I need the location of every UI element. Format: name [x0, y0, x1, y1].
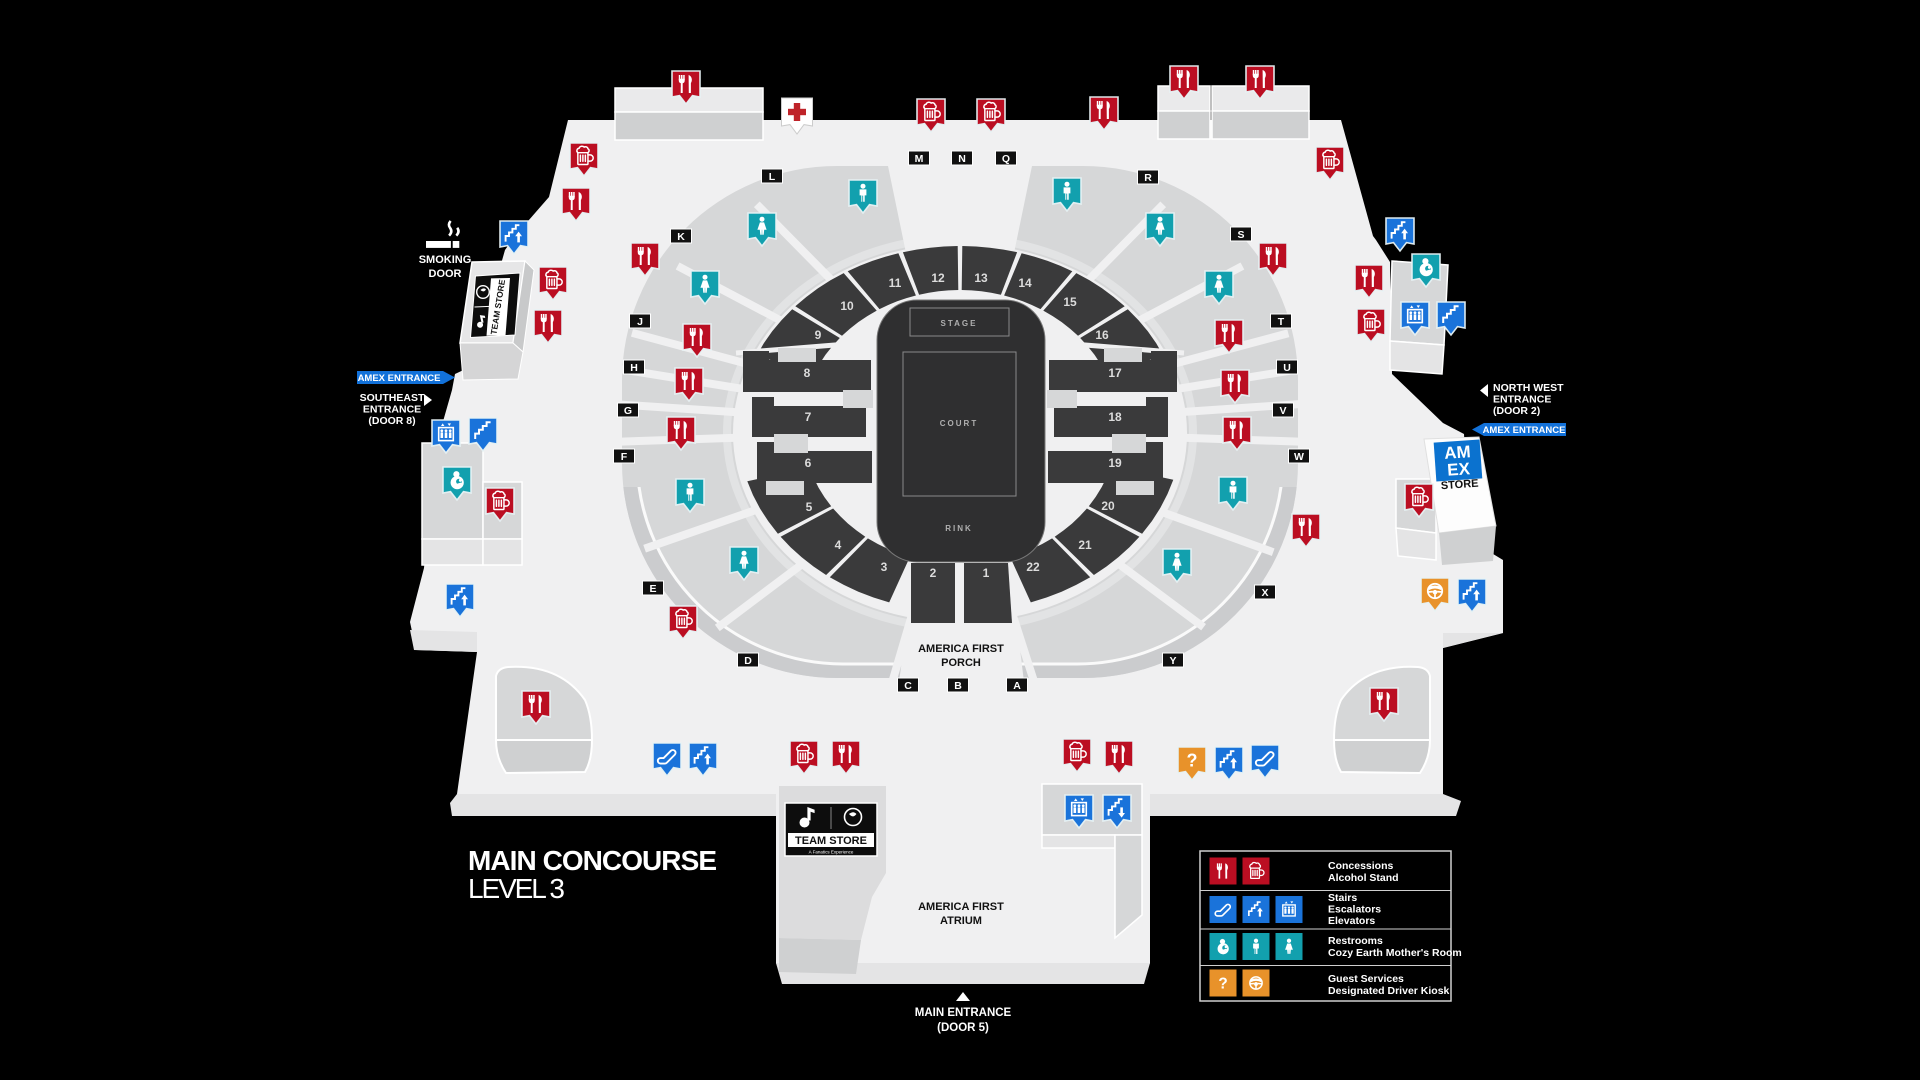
svg-text:ATRIUM: ATRIUM: [940, 915, 982, 927]
svg-text:(DOOR 2): (DOOR 2): [1493, 405, 1540, 417]
svg-text:Alcohol Stand: Alcohol Stand: [1328, 872, 1399, 884]
svg-text:18: 18: [1108, 410, 1122, 424]
svg-text:LEVEL 3: LEVEL 3: [468, 873, 565, 904]
svg-text:20: 20: [1101, 499, 1115, 513]
svg-text:E: E: [649, 583, 656, 595]
svg-text:4: 4: [835, 538, 842, 552]
svg-text:14: 14: [1018, 276, 1032, 290]
svg-text:11: 11: [889, 276, 902, 290]
svg-text:5: 5: [806, 500, 813, 514]
svg-text:3: 3: [881, 560, 888, 574]
svg-text:STAGE: STAGE: [941, 319, 978, 328]
svg-text:1: 1: [983, 566, 990, 580]
svg-text:H: H: [630, 362, 638, 374]
svg-text:F: F: [621, 451, 628, 463]
svg-text:B: B: [954, 680, 962, 692]
svg-text:(DOOR 8): (DOOR 8): [368, 415, 415, 427]
svg-text:A Fanatics Experience: A Fanatics Experience: [809, 850, 854, 855]
svg-text:A: A: [1013, 680, 1021, 692]
svg-text:U: U: [1283, 362, 1291, 374]
svg-text:16: 16: [1095, 328, 1109, 342]
svg-text:13: 13: [974, 271, 988, 285]
svg-text:Q: Q: [1002, 153, 1010, 165]
svg-text:19: 19: [1108, 456, 1122, 470]
svg-text:M: M: [915, 153, 924, 165]
svg-text:Elevators: Elevators: [1328, 915, 1375, 927]
svg-text:21: 21: [1078, 538, 1092, 552]
svg-text:COURT: COURT: [940, 419, 978, 428]
svg-text:S: S: [1237, 229, 1244, 241]
svg-text:Guest Services: Guest Services: [1328, 973, 1404, 985]
svg-text:8: 8: [804, 366, 811, 380]
svg-text:SOUTHEAST: SOUTHEAST: [360, 392, 425, 404]
svg-text:RINK: RINK: [945, 524, 973, 533]
svg-text:15: 15: [1063, 295, 1077, 309]
svg-text:Designated Driver Kiosk: Designated Driver Kiosk: [1328, 985, 1450, 997]
svg-text:ENTRANCE: ENTRANCE: [363, 404, 421, 416]
svg-text:10: 10: [840, 299, 854, 313]
svg-text:W: W: [1294, 451, 1304, 463]
svg-text:C: C: [904, 680, 912, 692]
svg-text:ENTRANCE: ENTRANCE: [1493, 394, 1551, 406]
svg-text:AMERICA FIRST: AMERICA FIRST: [918, 901, 1004, 913]
svg-text:12: 12: [931, 271, 945, 285]
svg-text:Escalators: Escalators: [1328, 904, 1381, 916]
svg-text:2: 2: [930, 566, 937, 580]
svg-text:Y: Y: [1169, 655, 1176, 667]
svg-text:R: R: [1144, 172, 1152, 184]
svg-text:MAIN CONCOURSE: MAIN CONCOURSE: [468, 845, 717, 876]
svg-text:K: K: [677, 231, 685, 243]
svg-text:MAIN ENTRANCE: MAIN ENTRANCE: [915, 1007, 1012, 1019]
svg-text:X: X: [1261, 587, 1268, 599]
svg-text:(DOOR 5): (DOOR 5): [937, 1022, 989, 1034]
svg-text:EX: EX: [1447, 459, 1472, 480]
svg-text:SMOKING: SMOKING: [419, 254, 472, 266]
svg-text:Stairs: Stairs: [1328, 892, 1357, 904]
svg-text:DOOR: DOOR: [429, 268, 462, 280]
svg-text:22: 22: [1026, 560, 1040, 574]
svg-text:J: J: [637, 316, 643, 328]
svg-text:Cozy Earth Mother's Room: Cozy Earth Mother's Room: [1328, 947, 1462, 959]
svg-text:D: D: [744, 655, 752, 667]
svg-text:Restrooms: Restrooms: [1328, 935, 1383, 947]
svg-text:V: V: [1279, 405, 1286, 417]
svg-text:AMERICA FIRST: AMERICA FIRST: [918, 643, 1004, 655]
svg-text:AMEX ENTRANCE: AMEX ENTRANCE: [358, 373, 441, 384]
svg-text:AMEX ENTRANCE: AMEX ENTRANCE: [1483, 425, 1566, 436]
svg-text:9: 9: [815, 328, 822, 342]
svg-text:T: T: [1278, 316, 1285, 328]
svg-text:NORTH WEST: NORTH WEST: [1493, 382, 1564, 394]
svg-text:TEAM STORE: TEAM STORE: [795, 835, 867, 847]
svg-text:L: L: [769, 171, 776, 183]
svg-text:17: 17: [1108, 366, 1122, 380]
svg-text:Concessions: Concessions: [1328, 860, 1394, 872]
svg-text:N: N: [958, 153, 966, 165]
svg-text:G: G: [624, 405, 632, 417]
svg-text:7: 7: [805, 410, 812, 424]
svg-text:6: 6: [805, 456, 812, 470]
svg-text:PORCH: PORCH: [941, 657, 981, 669]
